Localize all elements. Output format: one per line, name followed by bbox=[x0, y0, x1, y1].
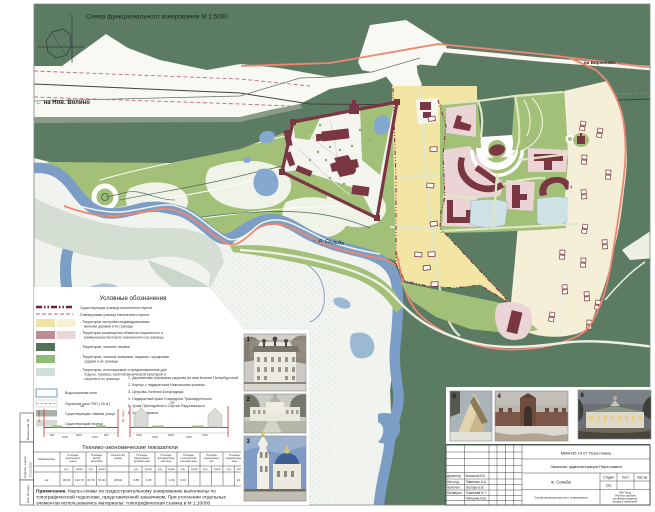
svg-text:проект: проект bbox=[98, 468, 106, 471]
svg-text:← на Нов. Волино: ← на Нов. Волино bbox=[36, 100, 90, 106]
svg-text:ной зоны: ной зоны bbox=[161, 460, 172, 463]
svg-text:Схема функционального зонирова: Схема функционального зонирования bbox=[534, 496, 588, 500]
svg-text:Схема функционального зонирова: Схема функционального зонирования М 1:50… bbox=[86, 14, 228, 21]
svg-text:- Территории, занятые скверами: - Территории, занятые скверами, парками,… bbox=[80, 355, 169, 359]
svg-text:с: с bbox=[69, 11, 71, 16]
svg-text:зоны: зоны bbox=[232, 460, 238, 463]
svg-text:садами и их границы: садами и их границы bbox=[84, 360, 119, 364]
svg-text:0.86: 0.86 bbox=[133, 478, 139, 482]
svg-text:проект: проект bbox=[145, 468, 153, 471]
svg-text:600: 600 bbox=[50, 433, 55, 437]
svg-text:сущ.: сущ. bbox=[133, 468, 138, 471]
svg-text:33.76: 33.76 bbox=[87, 478, 95, 482]
svg-text:сущ.: сущ. bbox=[203, 468, 208, 471]
svg-text:17.03.2010: 17.03.2010 bbox=[29, 462, 33, 477]
svg-text:26000: 26000 bbox=[114, 478, 123, 482]
svg-text:Листов: Листов bbox=[637, 476, 648, 480]
svg-text:0.32: 0.32 bbox=[180, 478, 186, 482]
svg-text:2000: 2000 bbox=[186, 435, 192, 439]
svg-text:-: - bbox=[194, 478, 195, 482]
svg-text:ственной зоны: ственной зоны bbox=[180, 460, 197, 463]
svg-text:1б: 1б bbox=[170, 401, 174, 405]
svg-text:Инв. № подл.: Инв. № подл. bbox=[26, 484, 30, 503]
svg-text:- Территории застройки индивид: - Территории застройки индивидуальными bbox=[80, 320, 150, 324]
svg-text:Копылов В.В.: Копылов В.В. bbox=[466, 474, 486, 478]
svg-text:элементов использовались матер: элементов использовались материалы: топо… bbox=[36, 501, 211, 507]
svg-text:- Территории, занятые лесами: - Территории, занятые лесами bbox=[80, 345, 130, 349]
svg-text:Павленко А.А.: Павленко А.А. bbox=[466, 480, 487, 484]
svg-text:- Территории размещения объект: - Территории размещения объектов социаль… bbox=[80, 331, 163, 335]
svg-text:3. Церковь Успения Богородицы: 3. Церковь Успения Богородицы bbox=[128, 390, 184, 394]
svg-text:Гусларь Е.В.: Гусларь Е.В. bbox=[466, 486, 485, 490]
svg-text:ПП: ПП bbox=[606, 484, 612, 488]
svg-text:Существующая граница населенно: Существующая граница населенного пункта bbox=[80, 306, 152, 310]
svg-text:Планируемая граница населенног: Планируемая граница населенного пункта bbox=[80, 313, 149, 317]
svg-text:Существующая главная улица: Существующая главная улица bbox=[65, 412, 115, 416]
svg-text:2000: 2000 bbox=[92, 435, 98, 439]
svg-text:сущ.: сущ. bbox=[226, 468, 231, 471]
svg-text:ж. Сольба: ж. Сольба bbox=[551, 480, 571, 485]
svg-text:жилыми домами и их границы: жилыми домами и их границы bbox=[84, 325, 134, 329]
svg-text:Кр. линия: Кр. линия bbox=[121, 410, 125, 422]
svg-text:6000: 6000 bbox=[76, 433, 82, 437]
svg-text:Стадия: Стадия bbox=[603, 476, 614, 480]
svg-text:Заказчик: администрация Пересл: Заказчик: администрация Переславля bbox=[550, 464, 621, 469]
svg-text:Нач.отд.: Нач.отд. bbox=[447, 480, 459, 484]
svg-text:м2: м2 bbox=[45, 478, 49, 482]
svg-text:600: 600 bbox=[104, 433, 109, 437]
svg-text:зон: зон bbox=[210, 460, 215, 463]
svg-text:Существующий проезд: Существующий проезд bbox=[65, 422, 103, 426]
svg-text:проект: проект bbox=[168, 468, 176, 471]
svg-text:Взамен инв. №: Взамен инв. № bbox=[26, 418, 30, 440]
svg-text:топографической подоснове, пре: топографической подоснове, представленно… bbox=[36, 494, 226, 501]
svg-text:Лист: Лист bbox=[622, 476, 629, 480]
svg-text:сущ.: сущ. bbox=[64, 468, 69, 471]
svg-text:проект: проект bbox=[214, 468, 222, 471]
svg-text:1000: 1000 bbox=[136, 433, 142, 437]
svg-text:Архитект.: Архитект. bbox=[447, 486, 461, 490]
svg-text:Технико-экономические показате: Технико-экономические показатели bbox=[82, 445, 178, 451]
svg-text:городов и территорий": городов и территорий" bbox=[612, 501, 637, 504]
svg-text:-: - bbox=[229, 478, 230, 482]
svg-text:проект: проект bbox=[191, 468, 199, 471]
svg-text:Условные обозначения: Условные обозначения bbox=[100, 295, 167, 302]
svg-text:1. Деревянная трапезная церков: 1. Деревянная трапезная церковь во имя К… bbox=[128, 376, 238, 380]
svg-text:Пичугина И.В.: Пичугина И.В. bbox=[466, 497, 487, 501]
svg-text:Директор: Директор bbox=[447, 474, 461, 478]
svg-text:- Территории, используемые и п: - Территории, используемые и предназначе… bbox=[80, 368, 167, 372]
svg-text:Примечание. Карты-схемы по: Примечание. Карты-схемы по градостроител… bbox=[36, 489, 216, 495]
svg-text:38.06: 38.06 bbox=[63, 478, 71, 482]
svg-text:-: - bbox=[160, 478, 161, 482]
svg-text:Водоохранная зона: Водоохранная зона bbox=[65, 391, 97, 395]
svg-text:Кр. линия: Кр. линия bbox=[37, 410, 41, 422]
svg-text:коммунально-бытового назначени: коммунально-бытового назначения и их гра… bbox=[84, 336, 164, 340]
svg-text:1000: 1000 bbox=[202, 433, 208, 437]
svg-text:застройки: застройки bbox=[91, 460, 103, 463]
svg-text:домов: домов bbox=[114, 457, 122, 460]
svg-text:спортом и их границы: спортом и их границы bbox=[84, 377, 120, 381]
svg-text:сущ.: сущ. bbox=[180, 468, 185, 471]
svg-text:2000: 2000 bbox=[152, 435, 158, 439]
svg-text:3.34: 3.34 bbox=[169, 478, 175, 482]
svg-text:Томилова Н. І: Томилова Н. І bbox=[466, 491, 486, 495]
svg-text:проект: проект bbox=[76, 468, 84, 471]
svg-text:1.06: 1.06 bbox=[146, 478, 152, 482]
svg-text:134.70: 134.70 bbox=[75, 478, 85, 482]
svg-text:сущ.: сущ. bbox=[157, 468, 162, 471]
svg-text:на Вирхняево →: на Вирхняево → bbox=[584, 60, 622, 65]
svg-text:МКВН35 10.07 Переславль: МКВН35 10.07 Переславль bbox=[561, 451, 611, 456]
svg-text:Подпись и дата: Подпись и дата bbox=[23, 456, 27, 478]
svg-text:сущ.: сущ. bbox=[88, 468, 93, 471]
svg-text:Проверил: Проверил bbox=[447, 491, 462, 495]
svg-text:6000: 6000 bbox=[168, 433, 174, 437]
svg-text:деловой зоны: деловой зоны bbox=[134, 460, 150, 463]
svg-text:2. Корпус с надвратным Никольс: 2. Корпус с надвратным Никольским храмом bbox=[128, 383, 205, 387]
svg-text:51.91: 51.91 bbox=[98, 478, 106, 482]
svg-text:5. Храм Преподобного Сергия Ра: 5. Храм Преподобного Сергия Радонежского bbox=[128, 404, 205, 408]
svg-text:Охранная зона ЛЭП ( 20 м ): Охранная зона ЛЭП ( 20 м ) bbox=[65, 402, 110, 406]
svg-text:2000: 2000 bbox=[62, 435, 68, 439]
svg-text:Наименование: Наименование bbox=[38, 458, 56, 461]
svg-text:1а: 1а bbox=[80, 404, 84, 408]
svg-text:пункта: пункта bbox=[69, 460, 77, 463]
